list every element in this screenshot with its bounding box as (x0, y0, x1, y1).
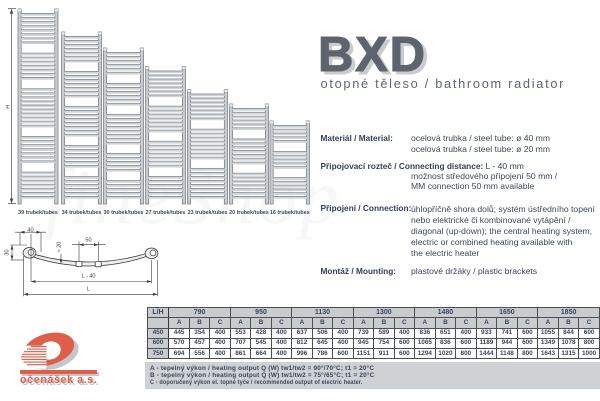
svg-text:L - 40: L - 40 (81, 274, 95, 280)
svg-text:16 trubek/tubes: 16 trubek/tubes (270, 210, 310, 216)
svg-text:30 trubek/tubes: 30 trubek/tubes (104, 210, 144, 216)
svg-text:23 trubek/tubes: 23 trubek/tubes (188, 210, 228, 216)
svg-text:≈ 20: ≈ 20 (57, 242, 63, 253)
svg-text:50: 50 (85, 238, 91, 244)
svg-text:20 trubek/tubes: 20 trubek/tubes (229, 210, 269, 216)
svg-text:30: 30 (5, 249, 11, 255)
svg-text:40: 40 (27, 227, 33, 233)
svg-text:34 trubek/tubes: 34 trubek/tubes (62, 210, 102, 216)
svg-text:L: L (87, 286, 90, 292)
svg-text:27 trubek/tubes: 27 trubek/tubes (146, 210, 186, 216)
svg-text:39 trubek/tubes: 39 trubek/tubes (18, 210, 58, 216)
svg-text:H: H (6, 105, 12, 109)
